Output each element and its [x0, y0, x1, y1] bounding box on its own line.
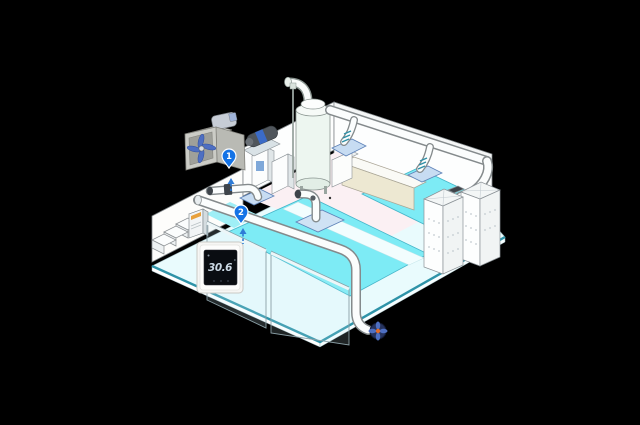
air-handling-unit-icon-front	[424, 186, 464, 274]
marker-1-label: 1	[226, 152, 232, 162]
air-handling-unit-icon-rear	[461, 182, 500, 266]
isometric-scene: 30.6 ° 1 2	[0, 0, 640, 425]
thermostat-icon: 30.6 °	[197, 242, 243, 293]
pool-hvac-illustration: 30.6 ° 1 2	[0, 0, 640, 425]
thermostat-reading: 30.6	[208, 262, 232, 274]
wall-controller-icon	[189, 209, 208, 238]
marker-2-label: 2	[238, 208, 244, 218]
deck-drain-dot	[329, 197, 331, 199]
